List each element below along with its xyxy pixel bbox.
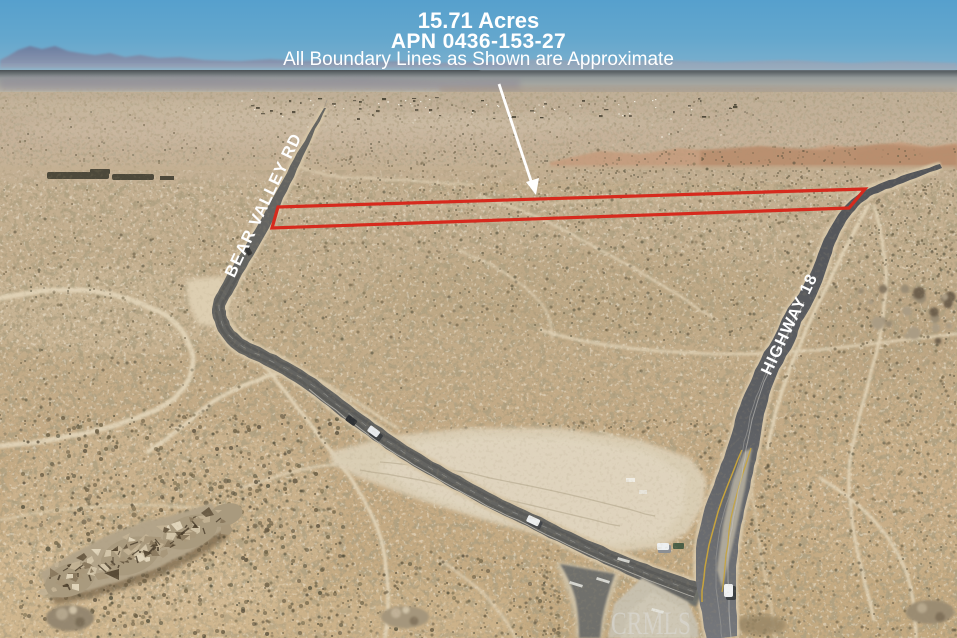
svg-text:CRMLS: CRMLS [611,606,691,638]
